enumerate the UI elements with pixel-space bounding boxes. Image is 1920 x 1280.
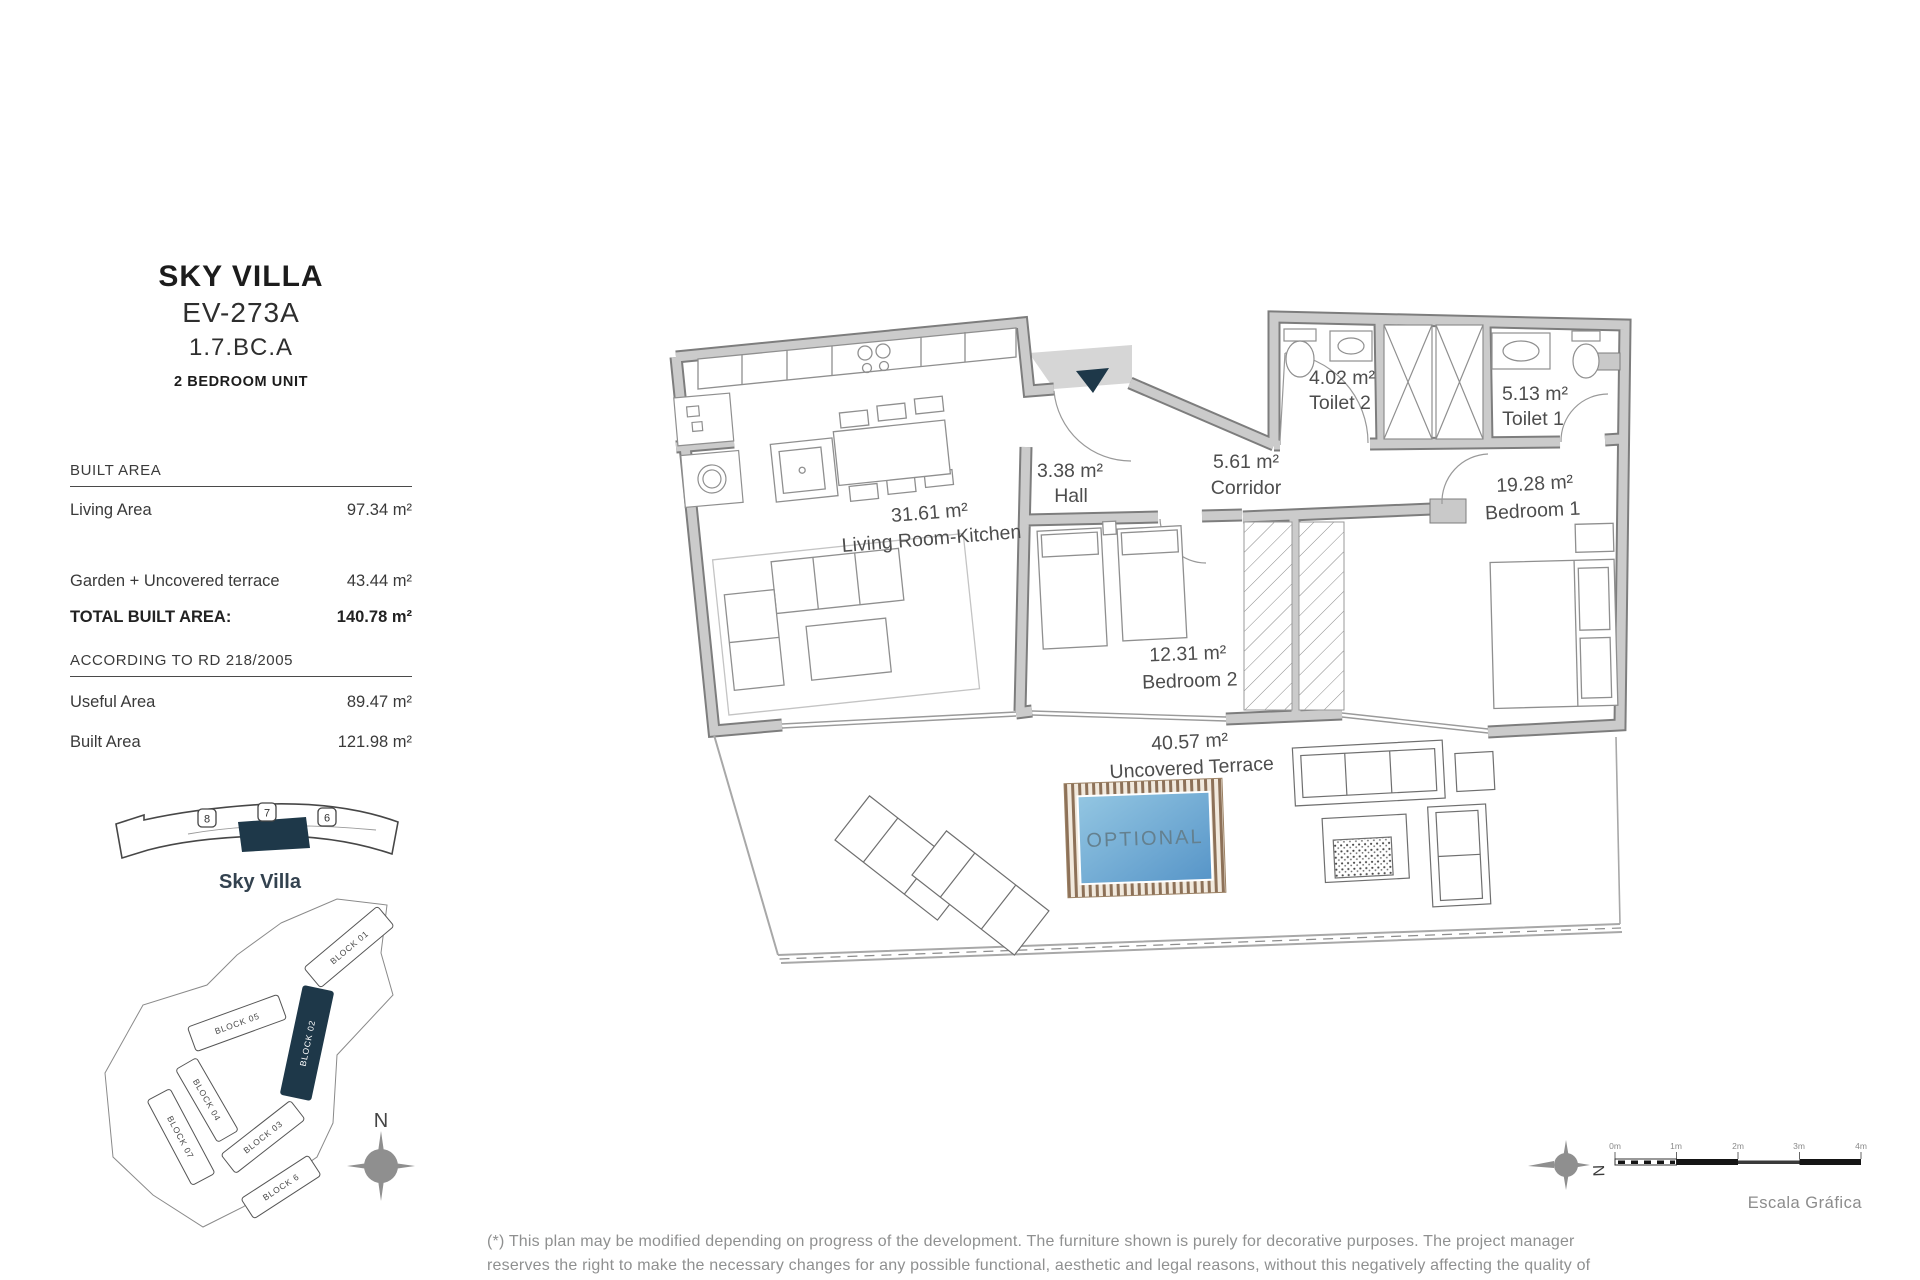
scale-bar-area: N 0m 1m 2m 3m 4m Escala Gráfica (1528, 1132, 1898, 1227)
room-label-toilet1-area: 5.13 m² (1502, 383, 1569, 405)
table-row-total: TOTAL BUILT AREA: 140.78 m² (70, 608, 412, 627)
compass-needle-w (1528, 1161, 1554, 1168)
scale-tick-1: 1m (1670, 1141, 1682, 1151)
bedroom1-bed (1489, 523, 1618, 708)
scale-tick-3: 3m (1793, 1141, 1805, 1151)
title-block: SKY VILLA EV-273A 1.7.BC.A 2 BEDROOM UNI… (70, 260, 412, 390)
table-row: Built Area 121.98 m² (70, 733, 412, 752)
table-row: Garden + Uncovered terrace 43.44 m² (70, 572, 412, 591)
floor-badge-7: 7 (258, 803, 276, 821)
floor-badge-8: 8 (198, 809, 216, 827)
shower-stalls (1384, 325, 1483, 439)
entrance-porch (1029, 345, 1132, 389)
table-row: Useful Area 89.47 m² (70, 693, 412, 712)
unit-highlight (238, 817, 310, 852)
island-dining-set (767, 396, 954, 509)
floor-badge-6: 6 (318, 808, 336, 826)
north-compass: N (347, 1110, 415, 1201)
glass-doors (782, 711, 1488, 733)
total-value: 140.78 m² (337, 608, 412, 627)
room-label-living-area: 31.61 m² (890, 499, 969, 527)
optional-pool: OPTIONAL (1064, 778, 1226, 897)
bedroom2-beds (1037, 518, 1187, 649)
scale-tick-0: 0m (1609, 1141, 1621, 1151)
room-label-hall-name: Hall (1054, 485, 1088, 507)
site-block-02: BLOCK 02 (280, 985, 335, 1101)
row-value: 121.98 m² (338, 733, 412, 752)
total-label: TOTAL BUILT AREA: (70, 608, 231, 627)
row-value: 97.34 m² (347, 501, 412, 520)
site-block-03: BLOCK 03 (221, 1100, 305, 1173)
floor-plan-drawing: OPTIONAL 31.61 m² Living Room-Kitchen 3.… (630, 295, 1700, 995)
row-value: 43.44 m² (347, 572, 412, 591)
rd-heading: ACCORDING TO RD 218/2005 (70, 652, 412, 677)
rd-area-table: ACCORDING TO RD 218/2005 Useful Area 89.… (70, 652, 412, 752)
building-locator: 8 7 6 Sky Villa (108, 790, 408, 900)
row-value: 89.47 m² (347, 693, 412, 712)
row-label: Living Area (70, 501, 152, 520)
row-label: Garden + Uncovered terrace (70, 572, 280, 591)
floor-plan-sheet: SKY VILLA EV-273A 1.7.BC.A 2 BEDROOM UNI… (0, 0, 1920, 1280)
rotated-north-label: N (1589, 1165, 1606, 1177)
disclaimer-text: (*) This plan may be modified depending … (487, 1230, 1605, 1280)
sun-loungers (835, 796, 1049, 955)
built-area-heading: BUILT AREA (70, 462, 412, 487)
room-label-terrace-name: Uncovered Terrace (1109, 753, 1274, 784)
table-row: Living Area 97.34 m² (70, 501, 412, 520)
room-label-bedroom1-area: 19.28 m² (1496, 471, 1575, 497)
floor-badge-7-label: 7 (264, 808, 270, 820)
row-label: Useful Area (70, 693, 155, 712)
plan-north-compass: N (1528, 1140, 1606, 1190)
room-label-living-name: Living Room-Kitchen (841, 521, 1022, 557)
room-label-bedroom1-name: Bedroom 1 (1484, 498, 1580, 525)
floor-badge-6-label: 6 (324, 813, 330, 825)
sofa-set (713, 534, 980, 715)
north-label: N (374, 1110, 388, 1132)
unit-type: 2 BEDROOM UNIT (70, 374, 412, 390)
unit-code: EV-273A (70, 297, 412, 329)
site-plan: BLOCK 01 BLOCK 02 BLOCK 05 BLOCK 04 BLOC… (85, 895, 415, 1240)
locator-name: Sky Villa (219, 871, 302, 893)
site-block-06: BLOCK 6 (241, 1155, 321, 1219)
room-label-hall-area: 3.38 m² (1037, 460, 1104, 482)
room-label-toilet2-name: Toilet 2 (1309, 392, 1371, 414)
scale-ticks (1615, 1152, 1861, 1159)
room-label-toilet1-name: Toilet 1 (1502, 408, 1564, 430)
scale-tick-4: 4m (1855, 1141, 1867, 1151)
room-label-corridor-area: 5.61 m² (1213, 451, 1280, 473)
room-label-bedroom2-area: 12.31 m² (1149, 642, 1227, 667)
outdoor-furniture (1292, 738, 1500, 914)
compass-circle (1554, 1153, 1578, 1177)
graphic-scale: 0m 1m 2m 3m 4m Escala Gráfica (1609, 1141, 1867, 1212)
site-block-01: BLOCK 01 (304, 906, 394, 988)
scale-tick-2: 2m (1732, 1141, 1744, 1151)
scale-caption: Escala Gráfica (1748, 1194, 1863, 1212)
room-label-corridor-name: Corridor (1211, 477, 1282, 499)
pool-optional-label: OPTIONAL (1086, 826, 1204, 852)
corridor-pier (1430, 499, 1466, 523)
unit-ref: 1.7.BC.A (70, 334, 412, 362)
toilet1-fixtures (1492, 331, 1600, 378)
built-area-table: BUILT AREA Living Area 97.34 m² Garden +… (70, 462, 412, 627)
room-label-bedroom2-name: Bedroom 2 (1142, 668, 1238, 693)
site-block-05: BLOCK 05 (187, 994, 286, 1051)
room-label-toilet2-area: 4.02 m² (1309, 367, 1376, 389)
room-label-terrace-area: 40.57 m² (1151, 729, 1230, 755)
row-label: Built Area (70, 733, 141, 752)
page-title: SKY VILLA (70, 260, 412, 294)
compass-circle (364, 1149, 398, 1183)
floor-badge-8-label: 8 (204, 814, 210, 826)
